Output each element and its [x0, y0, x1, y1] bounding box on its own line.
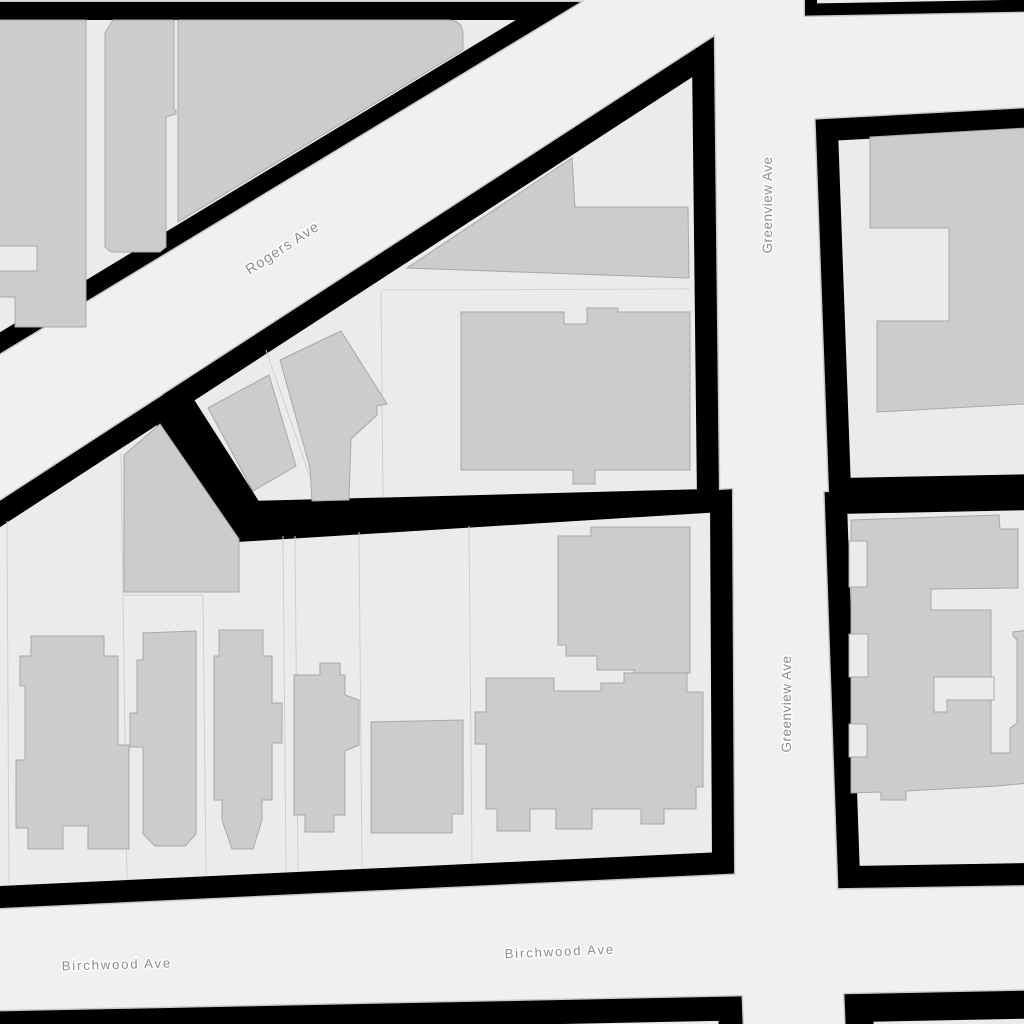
svg-text:Greenview Ave: Greenview Ave [779, 655, 794, 752]
svg-text:Greenview Ave: Greenview Ave [760, 156, 775, 253]
svg-text:Birchwood Ave: Birchwood Ave [62, 956, 173, 974]
